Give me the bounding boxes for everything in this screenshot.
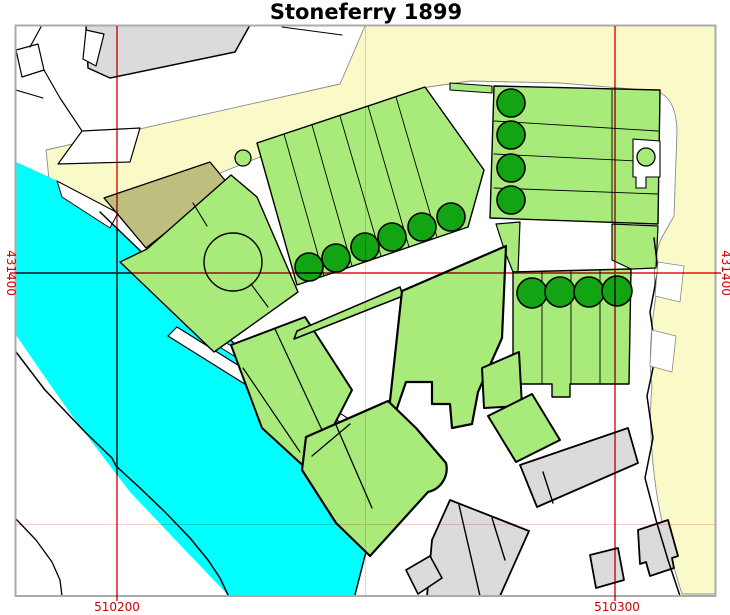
parcel-round-feature <box>204 233 262 291</box>
small-building <box>590 548 624 588</box>
map-page: 510200510300431400431400 Stoneferry 1899 <box>0 0 730 615</box>
tree-icon <box>322 244 350 272</box>
x-tick-label: 510300 <box>594 600 640 614</box>
y-tick-label-left: 431400 <box>4 250 18 296</box>
notch-circle <box>637 148 655 166</box>
tree-icon <box>517 278 547 308</box>
tree-icon <box>545 277 575 307</box>
tree-icon <box>497 154 525 182</box>
tree-icon <box>574 277 604 307</box>
road-pocket <box>650 330 676 372</box>
tree-icon <box>497 121 525 149</box>
tree-icon <box>408 213 436 241</box>
midright-extension <box>612 224 658 269</box>
tree-icon <box>602 276 632 306</box>
road-pocket <box>655 262 684 302</box>
tree-icon <box>437 203 465 231</box>
historical-map-canvas: 510200510300431400431400 Stoneferry 1899 <box>0 0 730 615</box>
tree-icon <box>378 223 406 251</box>
tree-icon <box>295 253 323 281</box>
y-tick-label-right: 431400 <box>719 250 730 296</box>
block-corner-circle <box>235 150 251 166</box>
map-title: Stoneferry 1899 <box>270 0 462 24</box>
tree-icon <box>497 186 525 214</box>
x-tick-label: 510200 <box>94 600 140 614</box>
tree-icon <box>497 89 525 117</box>
